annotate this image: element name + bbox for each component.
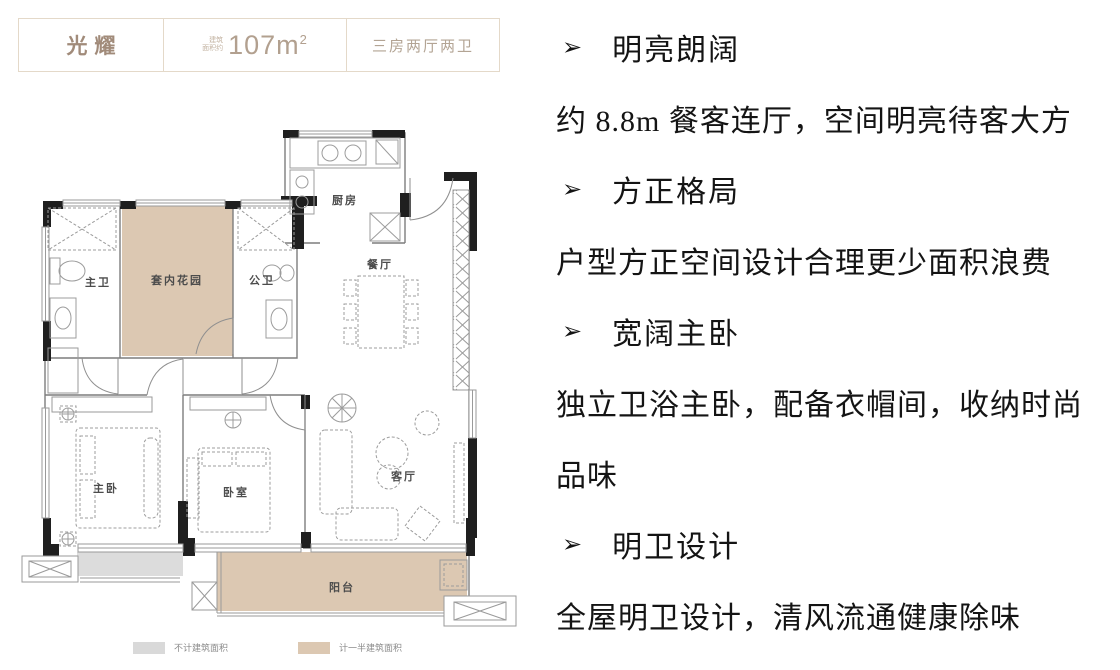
unit-layout-type: 三房两厅两卫 [347,19,499,71]
feature-heading-text: 明亮朗阔 [612,25,740,69]
area-value: 107m2 [228,30,308,61]
legend-label-tan: 计一半建筑面积 [339,641,402,654]
room-bedroom [187,412,270,532]
feature-body: 品味 [556,437,1116,508]
flyer-page: 光耀 建筑 面积约 107m2 三房两厅两卫 [0,0,1120,670]
room-guest-bath [238,208,294,338]
feature-body-text: 品味 [556,451,618,495]
feature-body-text: 户型方正空间设计合理更少面积浪费 [556,238,1052,282]
plan-legend: 不计建筑面积 计一半建筑面积 [133,641,402,654]
room-dining [344,276,418,348]
room-label-master-bedroom: 主卧 [93,481,119,495]
bullet-arrow-icon: ➢ [562,532,582,556]
bay-window-area [77,552,183,576]
legend-label-gray: 不计建筑面积 [174,641,228,654]
feature-heading-text: 明卫设计 [612,522,740,566]
floor-plan: 主卫 套内花园 公卫 厨房 餐厅 主卧 卧室 客厅 阳台 [20,108,520,640]
feature-heading-text: 宽阔主卧 [612,309,740,353]
area-prefix-top: 建筑 [209,37,223,45]
feature-body: 独立卫浴主卧，配备衣帽间，收纳时尚 [556,366,1116,437]
room-label-dining: 餐厅 [366,257,393,271]
room-label-balcony: 阳台 [329,580,355,594]
feature-heading: ➢ 宽阔主卧 [556,295,1116,366]
legend-swatch-tan [298,642,330,654]
bullet-arrow-icon: ➢ [562,35,582,59]
area-prefix-bottom: 面积约 [202,45,223,53]
feature-body-text: 全屋明卫设计，清风流通健康除味 [556,593,1021,637]
room-label-indoor-garden: 套内花园 [151,273,203,287]
room-label-bedroom: 卧室 [223,485,249,499]
room-kitchen [290,138,400,241]
room-living [320,394,464,541]
room-master-bath [48,208,116,338]
bullet-arrow-icon: ➢ [562,319,582,343]
room-label-guest-bath: 公卫 [249,274,275,287]
room-label-living: 客厅 [390,469,417,483]
legend-item-tan: 计一半建筑面积 [298,641,402,654]
feature-body: 户型方正空间设计合理更少面积浪费 [556,224,1116,295]
area-exponent: 2 [300,32,308,47]
feature-heading: ➢ 明卫设计 [556,508,1116,579]
feature-heading-text: 方正格局 [612,167,740,211]
exterior-box-right [444,596,516,626]
unit-area-cell: 建筑 面积约 107m2 [164,19,347,71]
feature-body-text: 独立卫浴主卧，配备衣帽间，收纳时尚 [556,380,1083,424]
legend-swatch-gray [133,642,165,654]
bullet-arrow-icon: ➢ [562,177,582,201]
unit-name: 光耀 [19,19,164,71]
area-prefix: 建筑 面积约 [202,37,223,53]
feature-heading: ➢ 方正格局 [556,153,1116,224]
unit-spec-bar: 光耀 建筑 面积约 107m2 三房两厅两卫 [18,18,500,72]
room-label-master-bath: 主卫 [85,275,111,289]
feature-body: 约 8.8m 餐客连厅，空间明亮待客大方 [556,82,1116,153]
feature-body-text: 约 8.8m 餐客连厅，空间明亮待客大方 [556,96,1072,140]
feature-heading: ➢ 明亮朗阔 [556,11,1116,82]
exterior-box-left [22,556,78,582]
feature-body: 全屋明卫设计，清风流通健康除味 [556,579,1116,650]
room-label-kitchen: 厨房 [332,193,358,207]
shaft-box [192,582,217,610]
room-master-bedroom [60,406,160,546]
feature-list: ➢ 明亮朗阔 约 8.8m 餐客连厅，空间明亮待客大方 ➢ 方正格局 户型方正空… [556,11,1116,650]
legend-item-gray: 不计建筑面积 [133,641,228,654]
